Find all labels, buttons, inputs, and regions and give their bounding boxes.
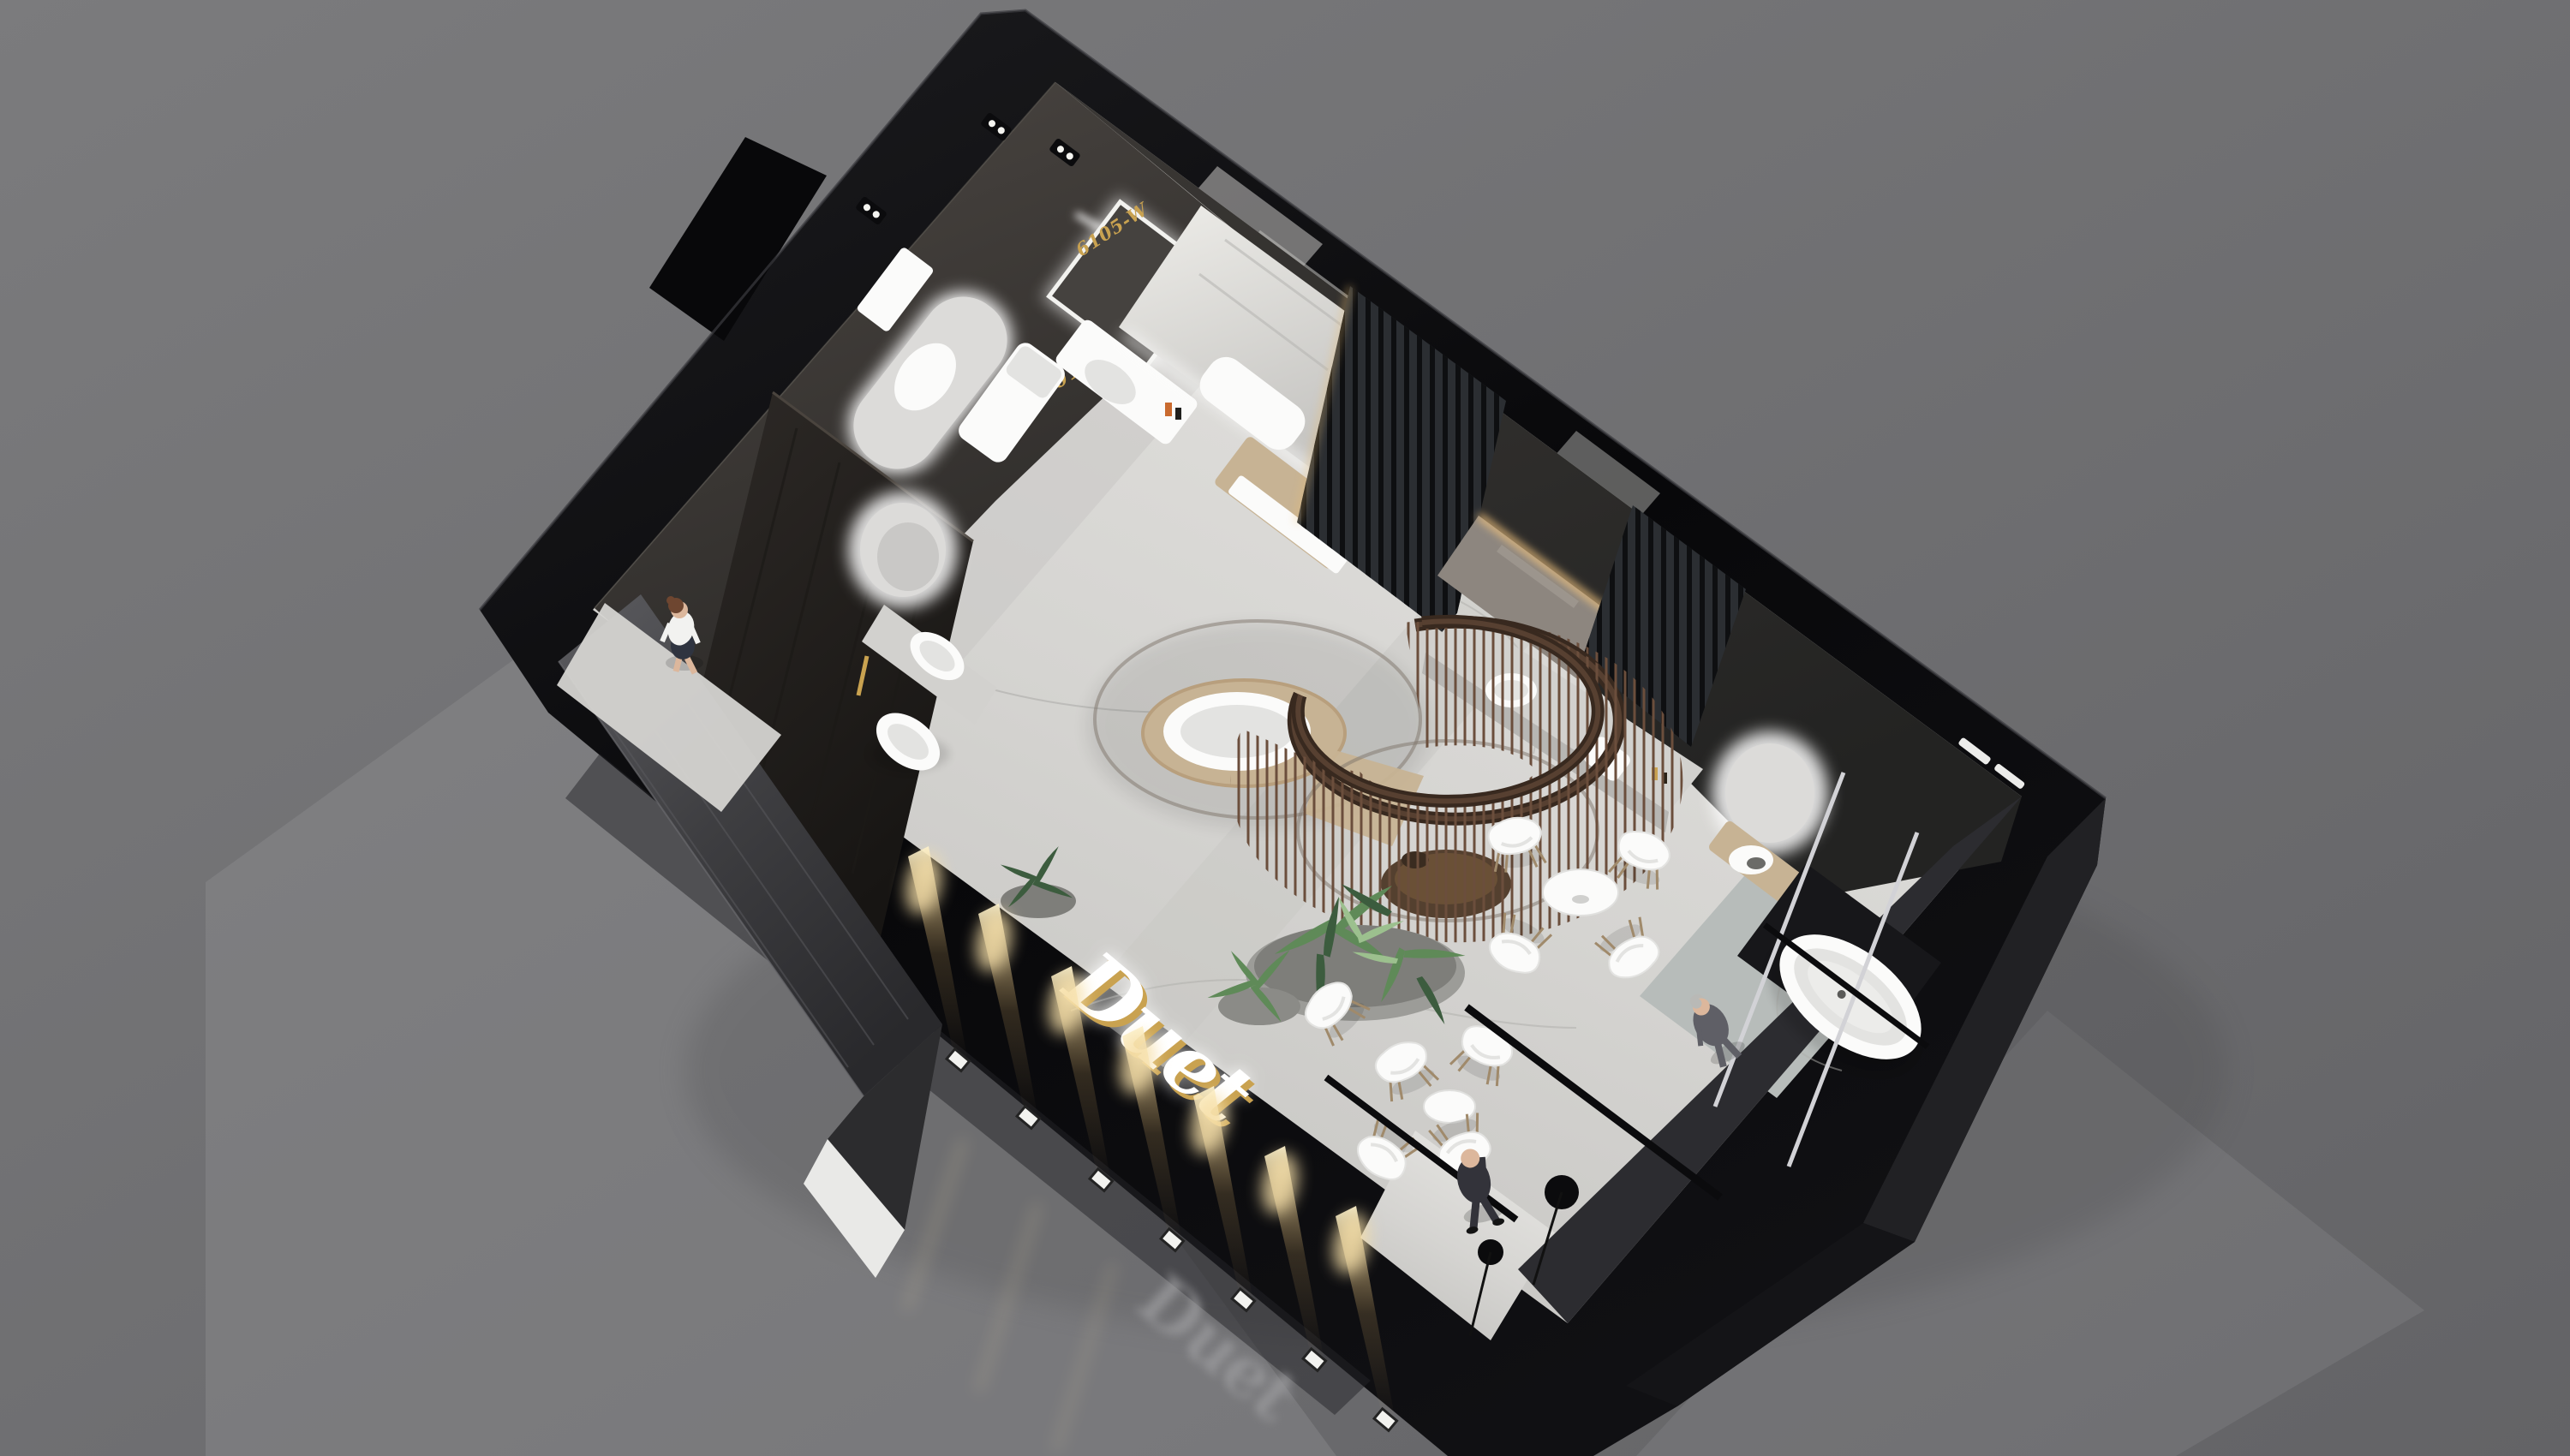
cafe-table — [1543, 869, 1618, 916]
cosmetic-bottle — [1165, 403, 1172, 416]
render-canvas: W-2013 6105-W — [0, 0, 2570, 1456]
cosmetic-bottle — [1175, 408, 1181, 420]
